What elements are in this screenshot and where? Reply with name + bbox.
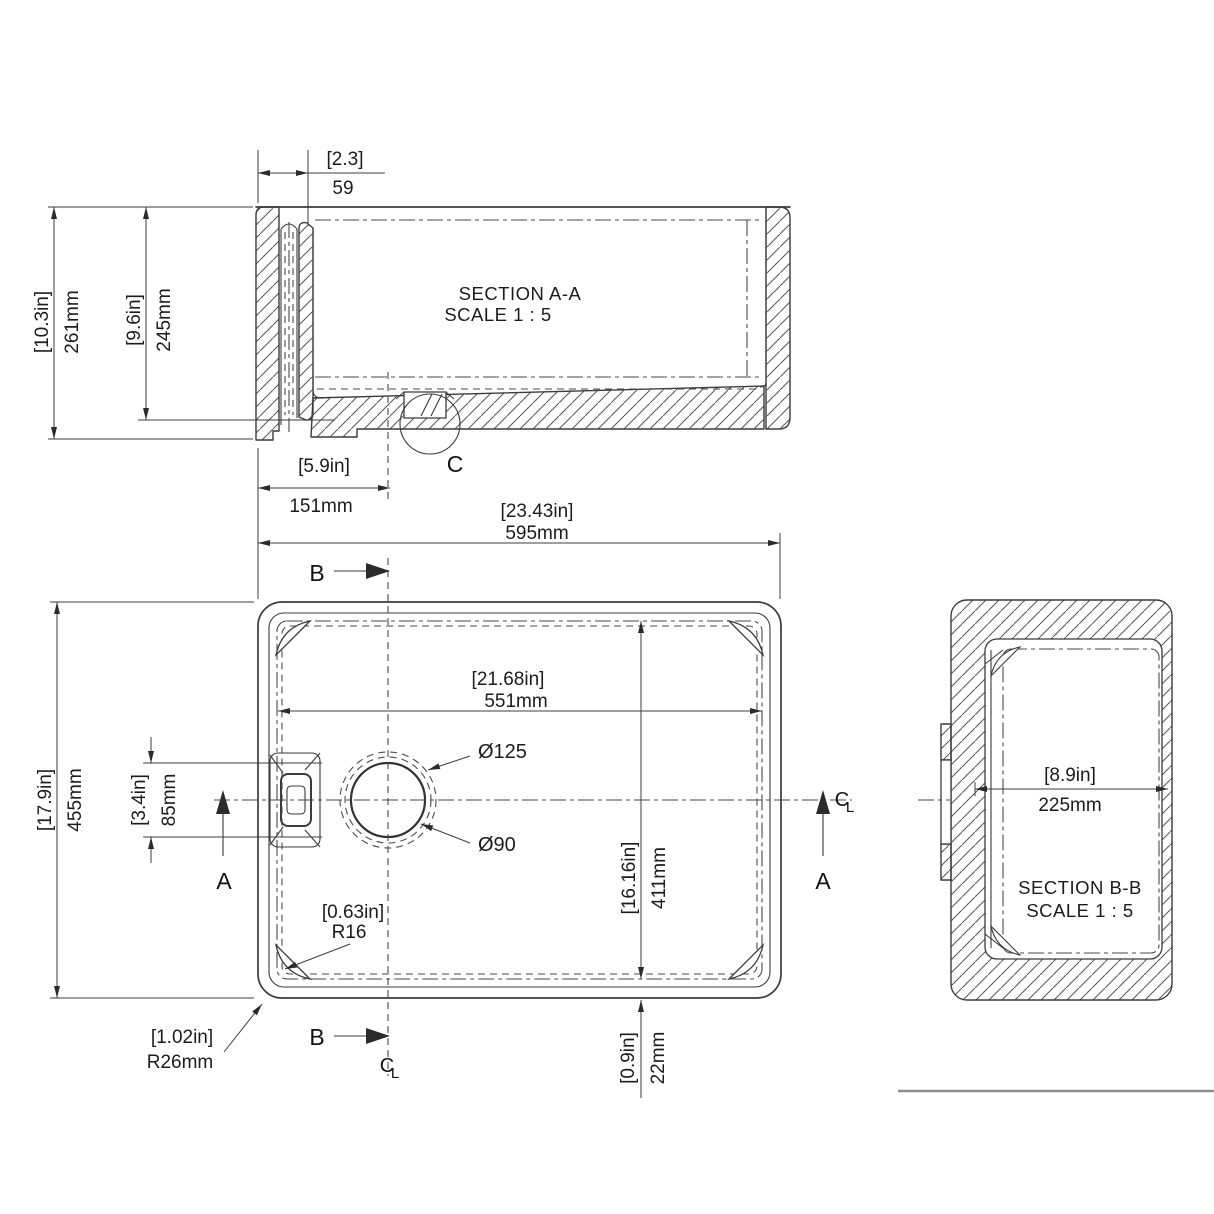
arrow-a-left-label: A	[216, 868, 232, 894]
dim-drain-diameters: Ø125 Ø90	[421, 741, 527, 856]
dim-outer-corner-radius: [1.02in] R26mm	[147, 1004, 262, 1073]
centerline-symbol-l: L	[846, 799, 854, 816]
dim-mm: R16	[332, 922, 367, 943]
dim-mm: 245mm	[154, 288, 175, 351]
dim-inches: [10.3in]	[32, 291, 53, 353]
arrow-head	[816, 790, 830, 814]
dim-mm: 59	[332, 178, 353, 199]
dim-inches: [9.6in]	[124, 294, 145, 346]
engineering-drawing-sheet: C SECTION A-A SCALE 1 : 5 [2.3] 59 [10.3…	[0, 0, 1214, 1214]
arrow-head	[216, 790, 230, 814]
bottom-slab-hatch	[311, 386, 764, 437]
dim-wall-offset: [0.9in] 22mm	[618, 1000, 669, 1098]
section-arrow-a-left: A	[216, 790, 232, 894]
dim-inches: [0.63in]	[322, 902, 384, 923]
section-bb-title: SECTION B-B	[1018, 877, 1142, 898]
sink-technical-drawing: C SECTION A-A SCALE 1 : 5 [2.3] 59 [10.3…	[0, 0, 1214, 1214]
detail-c-label: C	[447, 451, 464, 477]
dim-mm: 151mm	[289, 496, 352, 517]
dim-inches: [23.43in]	[501, 501, 574, 522]
apron-inner-wall-hatch	[299, 223, 313, 420]
dim-bowl-length: [21.68in] 551mm	[278, 669, 762, 712]
dim-inches: [1.02in]	[151, 1027, 213, 1048]
dim-inches: [8.9in]	[1044, 765, 1096, 786]
overflow-flare-line	[305, 830, 320, 847]
dim-mm: 225mm	[1038, 795, 1101, 816]
dim-mm: R26mm	[147, 1052, 214, 1073]
bb-overflow-block-bottom	[941, 844, 951, 880]
arrow-a-right-label: A	[815, 868, 831, 894]
bb-overflow-slot	[941, 760, 951, 844]
dim-inches: [3.4in]	[129, 774, 150, 826]
arrow-head	[366, 563, 390, 579]
plan-view	[214, 558, 852, 1076]
dim-inches: [17.9in]	[35, 769, 56, 831]
dim-inches: [0.9in]	[618, 1032, 639, 1084]
dim-mm: 411mm	[649, 847, 670, 909]
dim-inner-corner-radius: [0.63in] R16	[285, 902, 384, 969]
centerline-symbol-l: L	[391, 1065, 399, 1082]
basin-right-wall-line	[760, 210, 766, 387]
arrow-b-bottom-label: B	[309, 1024, 324, 1050]
dim-inches: [21.68in]	[472, 669, 545, 690]
section-aa-scale: SCALE 1 : 5	[444, 304, 551, 325]
section-arrow-a-right: A C L	[815, 789, 854, 894]
leader-line	[285, 944, 350, 969]
section-aa-title: SECTION A-A	[459, 283, 582, 304]
corner-web-bottom-left	[276, 945, 310, 979]
dim-mm: 595mm	[505, 523, 568, 544]
arrow-head	[366, 1028, 390, 1044]
dim-mm: 261mm	[62, 290, 83, 353]
bb-overflow-block-top	[941, 724, 951, 760]
dim-mm: 455mm	[65, 768, 86, 831]
section-bb-view: [8.9in] 225mm SECTION B-B SCALE 1 : 5	[918, 600, 1172, 1000]
right-wall-hatch	[766, 207, 790, 429]
apron-outer-wall-hatch	[256, 207, 279, 440]
basin-left-wall-line	[313, 228, 324, 398]
dim-mm: 22mm	[648, 1032, 669, 1085]
section-bb-scale: SCALE 1 : 5	[1026, 900, 1133, 921]
dim-inches: [5.9in]	[298, 456, 350, 477]
section-arrow-b-top: B	[309, 560, 390, 586]
leader-line	[224, 1004, 262, 1052]
drain-outer-dia-label: Ø125	[478, 741, 527, 763]
leader-line	[428, 756, 470, 770]
dim-mm: 551mm	[484, 691, 547, 712]
section-arrow-b-bottom: B C L	[309, 1024, 399, 1082]
arrow-b-top-label: B	[309, 560, 324, 586]
drain-inner-dia-label: Ø90	[478, 834, 516, 856]
leader-line	[421, 824, 470, 843]
overflow-flare-line	[305, 753, 320, 770]
dim-mm: 85mm	[159, 774, 180, 827]
dim-inches: [2.3]	[327, 149, 364, 170]
dim-inches: [16.16in]	[619, 842, 640, 915]
